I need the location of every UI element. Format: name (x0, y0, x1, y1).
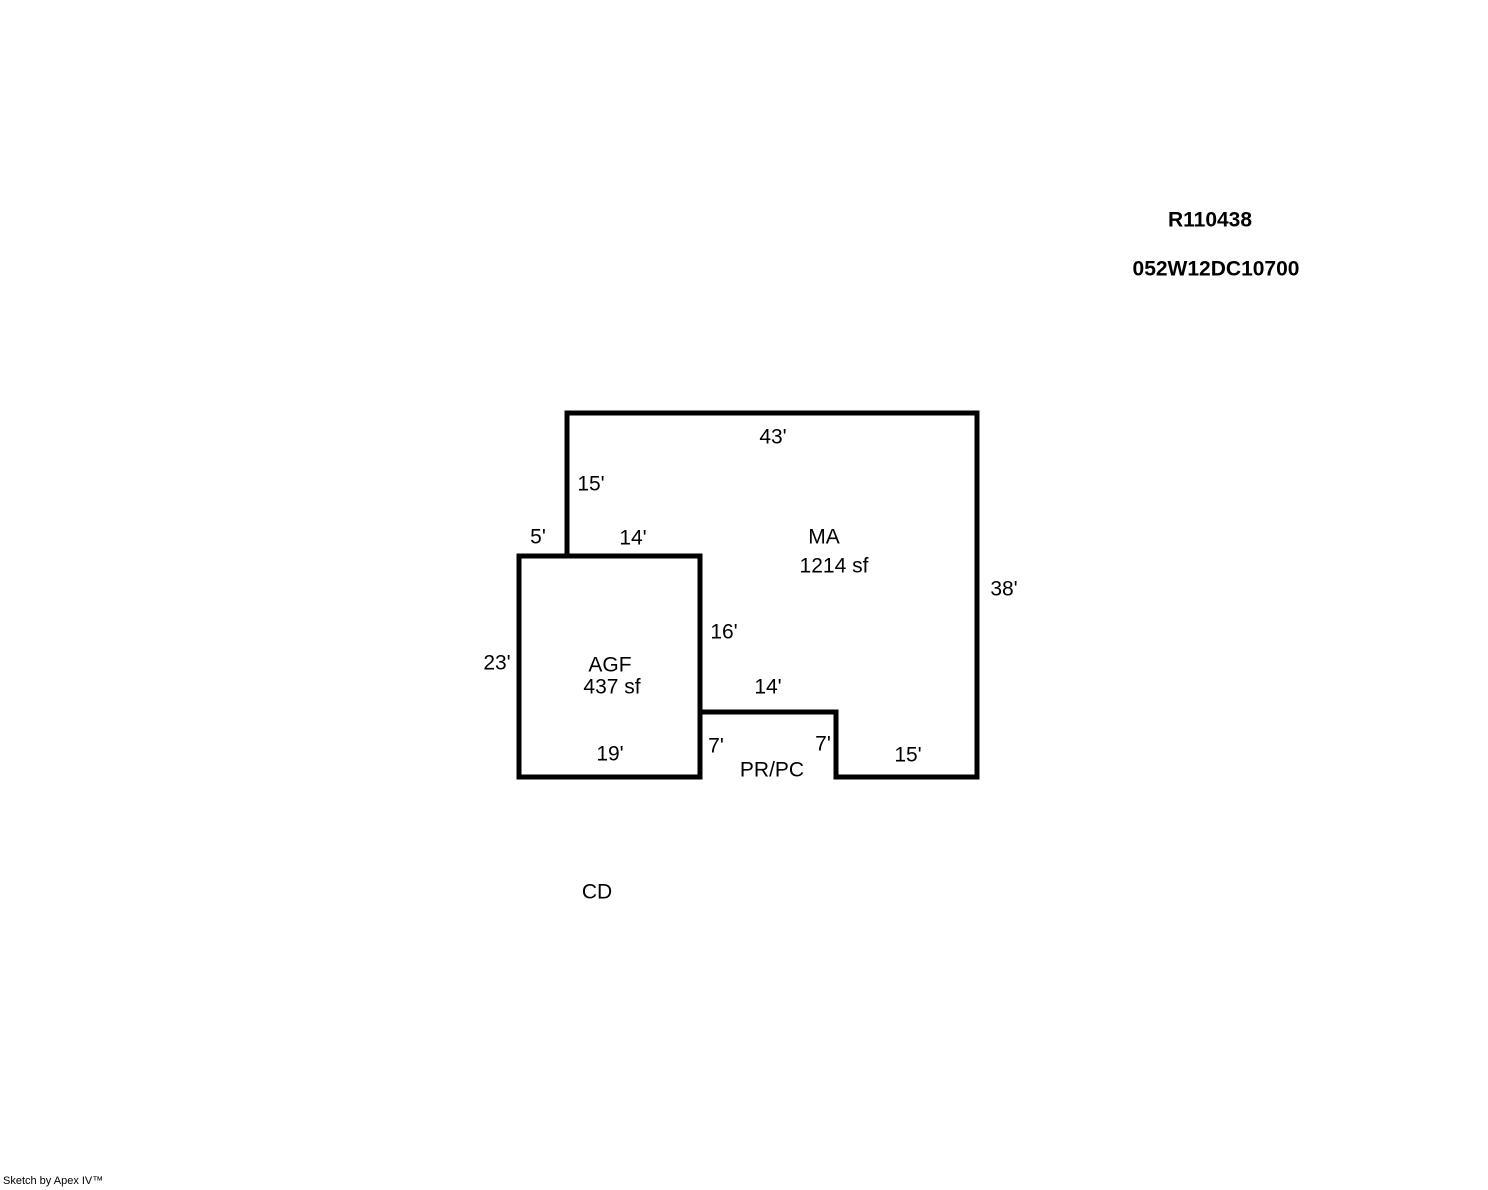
dim-agf-right: 16' (710, 622, 737, 643)
dim-bottom-right: 15' (894, 745, 921, 766)
area-prpc-label: PR/PC (740, 760, 804, 781)
dim-agf-bottom: 19' (596, 744, 623, 765)
apex-sketch-page: R110438 052W12DC10700 43' 15' 5' 14' 38'… (0, 0, 1488, 1190)
area-ma-label: MA (808, 527, 840, 548)
dim-top: 43' (759, 427, 786, 448)
dim-agf-top: 14' (619, 528, 646, 549)
ma-outline (567, 413, 977, 777)
dim-notch-left: 7' (708, 736, 724, 757)
dim-jog: 5' (530, 527, 546, 548)
floorplan-sketch (0, 0, 1488, 1190)
area-ma-size: 1214 sf (800, 556, 869, 577)
area-agf-label: AGF (588, 655, 631, 676)
dim-agf-left: 23' (483, 653, 510, 674)
detached-structure-label: CD (582, 882, 612, 903)
dim-right: 38' (990, 579, 1017, 600)
dim-notch-top: 14' (754, 677, 781, 698)
area-agf-size: 437 sf (583, 677, 640, 698)
footer-credit: Sketch by Apex IV™ (3, 1176, 103, 1187)
dim-left-upper: 15' (577, 474, 604, 495)
dim-notch-right: 7' (815, 734, 831, 755)
